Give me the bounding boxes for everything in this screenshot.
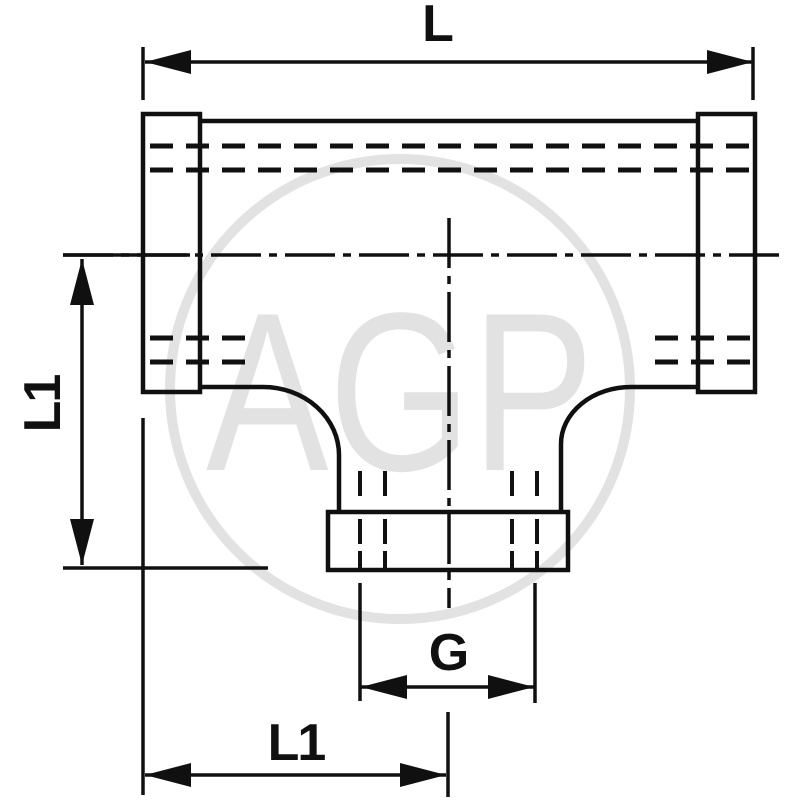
L1b-arrowhead-left [145,763,191,787]
L1-vertical-label: L1 [14,375,72,433]
L1v-arrowhead-bottom [70,519,94,565]
L-label: L [422,0,453,53]
L1-bottom-label: L1 [268,714,326,772]
L-arrowhead-left [145,50,191,74]
right-cap [698,114,755,392]
L1v-arrowhead-top [70,259,94,305]
L-arrowhead-right [707,50,753,74]
G-arrowhead-right [488,675,534,699]
drawing-canvas: AGP L [0,0,800,800]
L1b-arrowhead-right [400,763,446,787]
G-label: G [429,624,467,682]
G-arrowhead-left [361,675,407,699]
tee-fitting-drawing: AGP L [0,0,800,800]
dimension-L [143,47,753,100]
